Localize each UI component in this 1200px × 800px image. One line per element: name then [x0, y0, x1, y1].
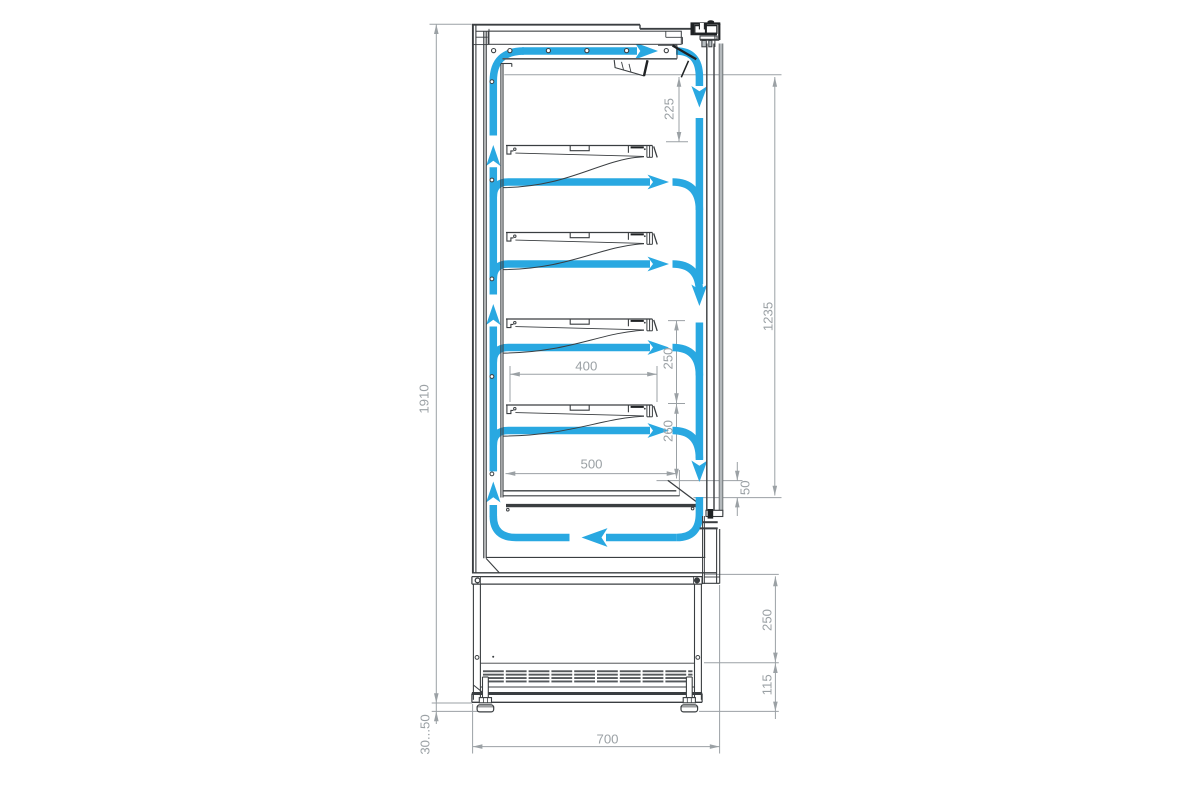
svg-text:30...50: 30...50 [417, 714, 432, 754]
svg-text:1235: 1235 [760, 302, 775, 331]
svg-text:260: 260 [660, 420, 675, 442]
svg-text:50: 50 [737, 480, 752, 495]
svg-text:1910: 1910 [416, 384, 431, 413]
svg-text:250: 250 [759, 609, 774, 631]
svg-text:700: 700 [596, 732, 618, 747]
svg-text:225: 225 [661, 98, 676, 120]
svg-text:500: 500 [580, 457, 602, 472]
svg-text:250: 250 [660, 347, 675, 369]
svg-text:400: 400 [575, 358, 597, 373]
svg-text:115: 115 [759, 674, 774, 695]
